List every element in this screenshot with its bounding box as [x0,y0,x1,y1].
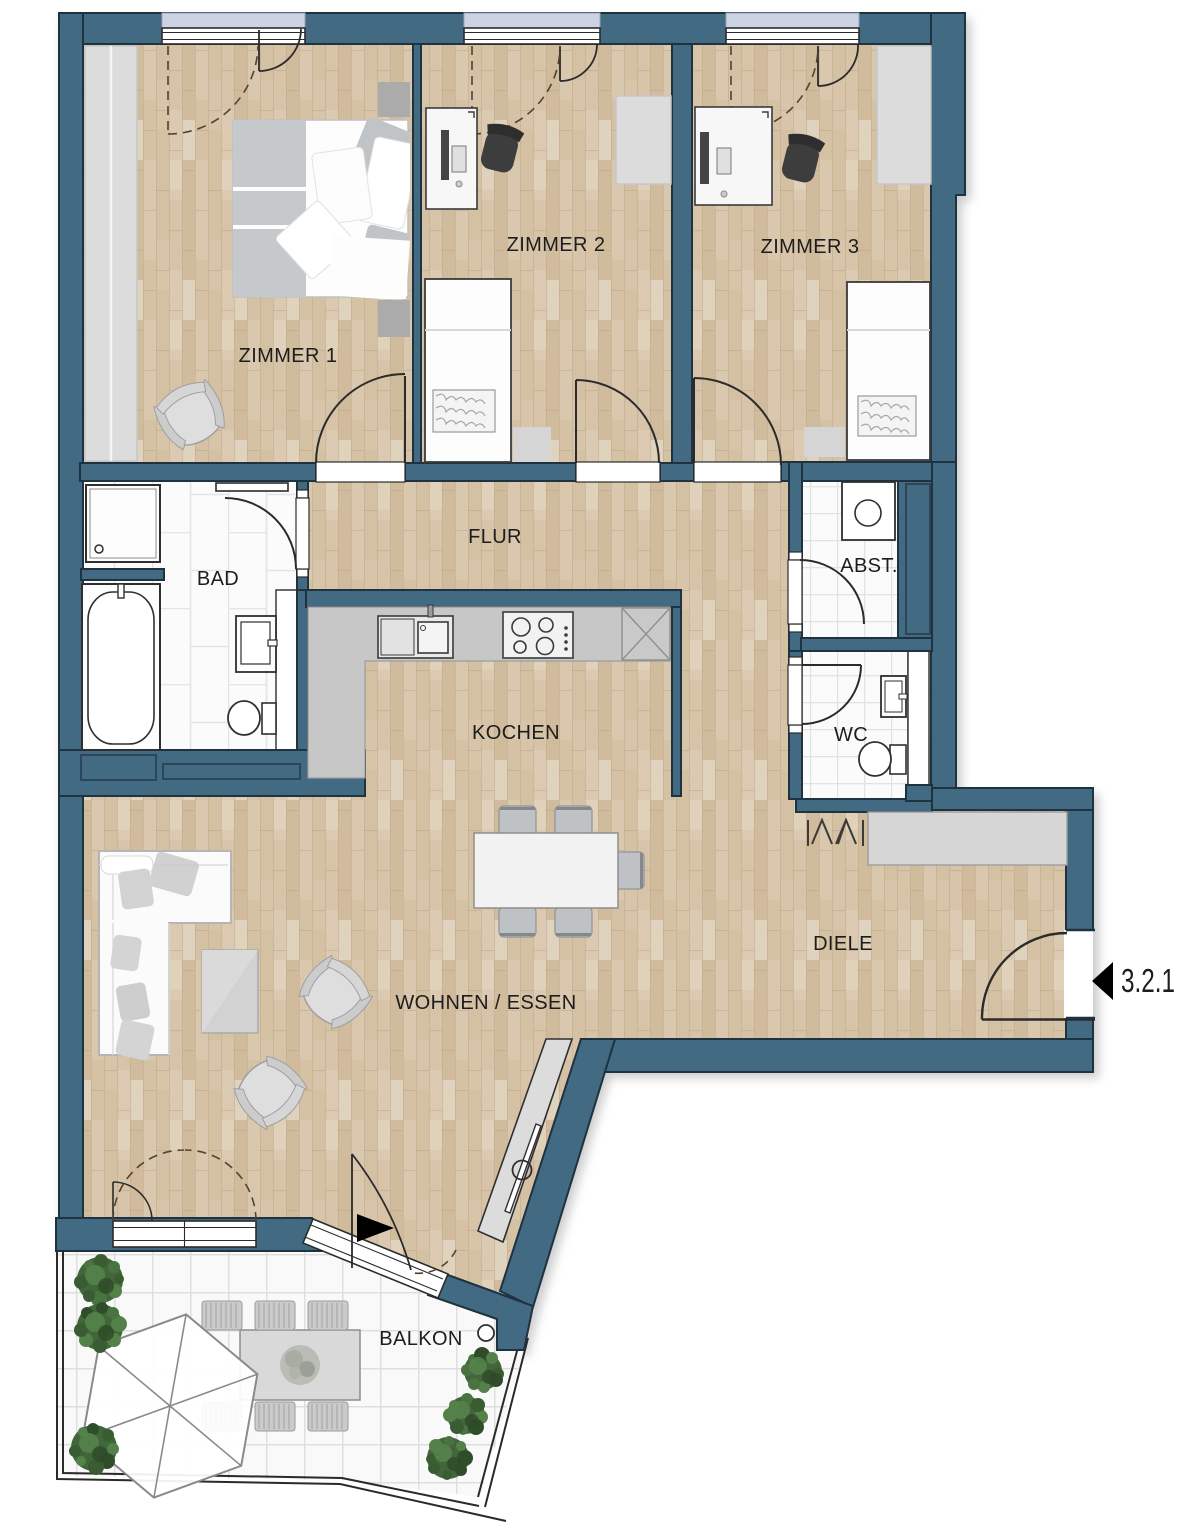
svg-text:KOCHEN: KOCHEN [472,722,560,744]
svg-text:BALKON: BALKON [379,1328,463,1350]
svg-text:ZIMMER 3: ZIMMER 3 [761,236,860,258]
svg-text:ABST.: ABST. [840,555,898,577]
svg-text:3.2.1: 3.2.1 [1121,962,1175,999]
svg-text:FLUR: FLUR [468,526,522,548]
svg-text:WOHNEN / ESSEN: WOHNEN / ESSEN [395,992,576,1014]
svg-text:ZIMMER 1: ZIMMER 1 [239,345,338,367]
svg-text:ZIMMER 2: ZIMMER 2 [507,234,606,256]
svg-text:BAD: BAD [197,568,239,590]
svg-text:WC: WC [834,724,868,746]
svg-text:DIELE: DIELE [813,933,873,955]
